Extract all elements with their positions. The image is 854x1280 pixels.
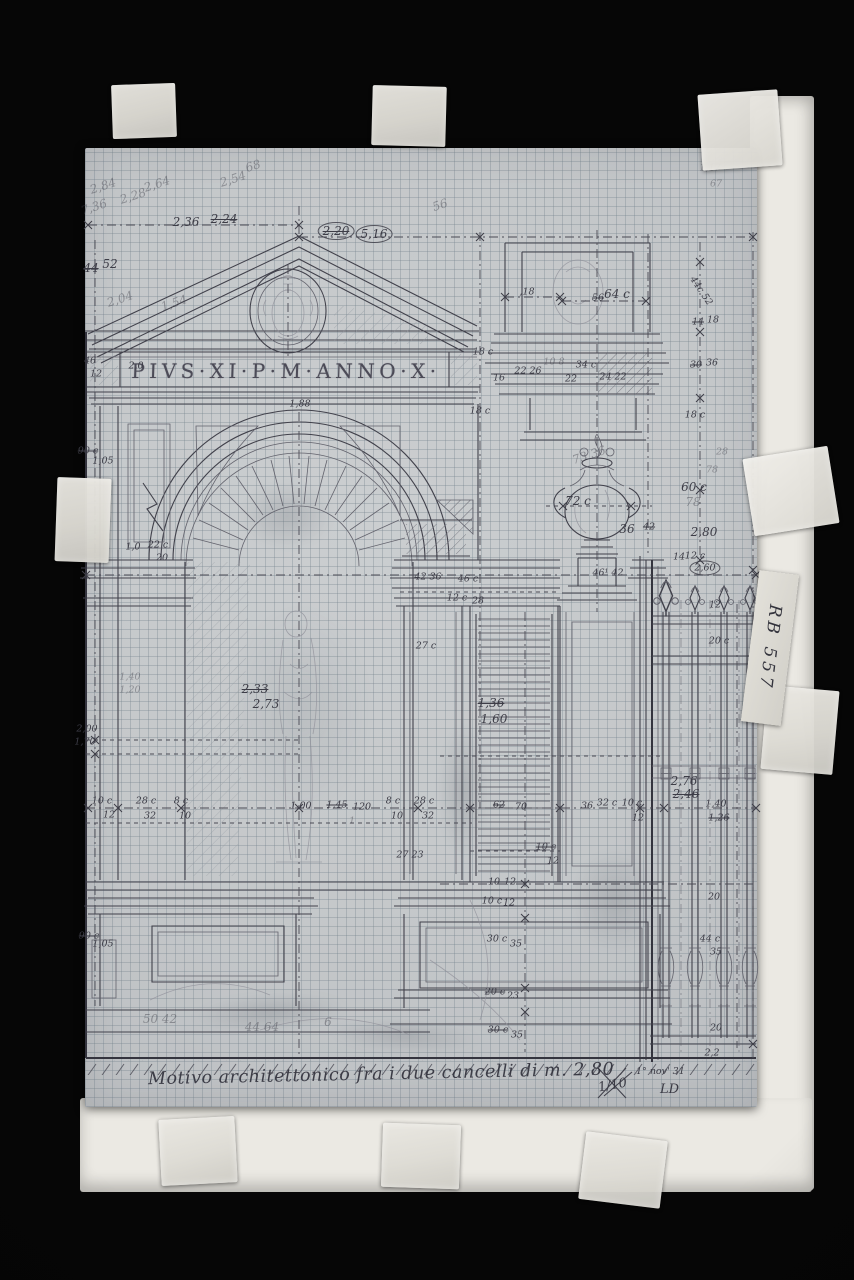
tape-piece: [371, 85, 447, 147]
tape-piece: [381, 1123, 461, 1190]
archive-label: RB 557: [755, 604, 785, 693]
photo-stage: PIVS·XI·P·M·ANNO·X· 2,362,242,205,164452…: [0, 0, 854, 1280]
tape-piece: [55, 477, 112, 563]
graphite-smudge: [222, 468, 352, 563]
tape-piece: [697, 89, 782, 170]
graphite-smudge: [428, 698, 498, 883]
author-monogram: LD: [660, 1082, 679, 1097]
frieze-inscription: PIVS·XI·P·M·ANNO·X·: [100, 359, 473, 383]
graphite-smudge: [198, 560, 403, 860]
graphite-smudge: [555, 828, 675, 973]
tape-piece: [742, 446, 839, 536]
date-note: 1° nov' 31: [636, 1066, 685, 1077]
tape-piece: [578, 1131, 668, 1208]
tape-piece: [158, 1116, 237, 1186]
tape-piece: [111, 83, 177, 139]
graph-paper-sheet: [85, 148, 757, 1107]
